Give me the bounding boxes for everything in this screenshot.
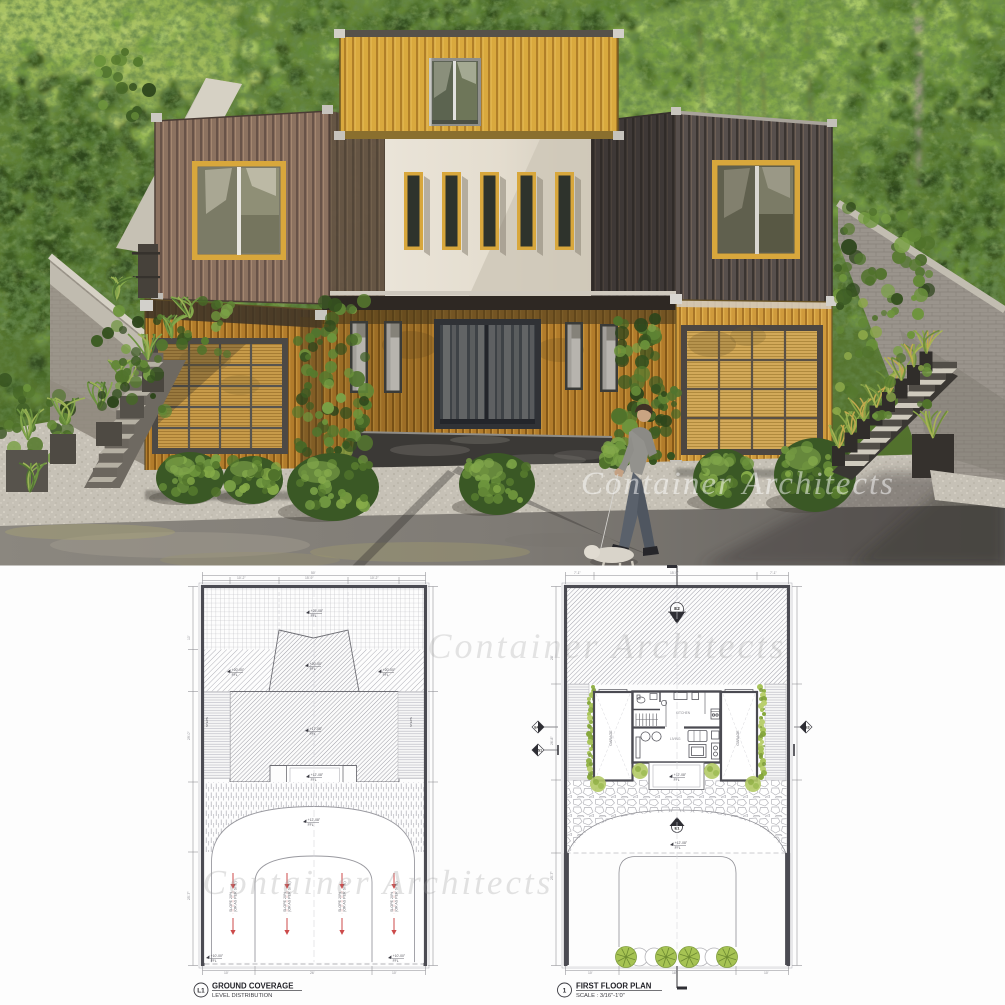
svg-text:18': 18' (672, 971, 677, 975)
svg-text:SCALE : 3/16"-1'0": SCALE : 3/16"-1'0" (576, 993, 625, 999)
svg-text:26'-8": 26'-8" (550, 736, 554, 745)
svg-text:FFL: FFL (674, 778, 680, 782)
svg-text:10'-2": 10'-2" (370, 576, 379, 580)
svg-text:+10'-00": +10'-00" (393, 954, 406, 958)
svg-text:E4: E4 (534, 726, 538, 730)
svg-text:+12'-08": +12'-08" (675, 841, 688, 845)
svg-text:FFL: FFL (211, 959, 217, 963)
svg-text:FFL: FFL (383, 673, 389, 677)
svg-text:E1: E1 (675, 826, 681, 831)
svg-text:S1: S1 (538, 749, 542, 753)
svg-text:FFL: FFL (393, 959, 399, 963)
svg-text:26': 26' (310, 971, 315, 975)
svg-text:+12'-08": +12'-08" (674, 773, 687, 777)
svg-text:+17'-08": +17'-08" (310, 727, 323, 731)
svg-text:E3: E3 (805, 726, 809, 730)
svg-text:+20'-00": +20'-00" (232, 668, 245, 672)
svg-text:25'-7": 25'-7" (550, 871, 554, 880)
svg-text:FFL: FFL (308, 823, 314, 827)
svg-text:LIVING: LIVING (670, 737, 681, 741)
svg-text:FFL: FFL (232, 673, 238, 677)
svg-text:FFL: FFL (675, 846, 681, 850)
svg-text:10'-2": 10'-2" (237, 576, 246, 580)
svg-text:15'-9": 15'-9" (305, 576, 314, 580)
svg-text:50': 50' (311, 571, 316, 575)
svg-text:10': 10' (187, 635, 191, 640)
svg-text:29'-0": 29'-0" (187, 731, 191, 740)
svg-text:+20'-00": +20'-00" (310, 662, 323, 666)
svg-text:+10'-00": +10'-00" (211, 954, 224, 958)
svg-text:+12'-08": +12'-08" (311, 773, 324, 777)
svg-text:L1: L1 (197, 988, 205, 995)
svg-text:Container Architects: Container Architects (203, 863, 554, 902)
svg-text:10': 10' (764, 971, 769, 975)
svg-text:+25'-08": +25'-08" (311, 609, 324, 613)
svg-text:Container Architects: Container Architects (428, 626, 787, 666)
svg-text:LEVEL DISTRIBUTION: LEVEL DISTRIBUTION (212, 993, 272, 999)
svg-text:10': 10' (392, 971, 397, 975)
svg-text:STEPS: STEPS (205, 717, 209, 727)
svg-text:15'-9": 15'-9" (670, 571, 679, 575)
svg-text:+20'-00": +20'-00" (383, 668, 396, 672)
svg-text:28': 28' (550, 655, 554, 660)
svg-text:25'-7": 25'-7" (187, 891, 191, 900)
svg-text:7'-1": 7'-1" (574, 571, 582, 575)
svg-text:KITCHEN: KITCHEN (676, 711, 691, 715)
svg-text:FFL: FFL (310, 667, 316, 671)
svg-text:GROUND COVERAGE: GROUND COVERAGE (212, 982, 293, 991)
svg-text:GARAGE: GARAGE (609, 730, 613, 746)
svg-text:Container Architects: Container Architects (581, 466, 895, 502)
svg-text:10': 10' (224, 971, 229, 975)
svg-text:10': 10' (588, 971, 593, 975)
svg-text:FFL: FFL (311, 614, 317, 618)
svg-text:FIRST FLOOR PLAN: FIRST FLOOR PLAN (576, 982, 652, 991)
svg-text:GARAGE: GARAGE (736, 730, 740, 746)
svg-text:FFL: FFL (310, 732, 316, 736)
svg-text:+12'-08": +12'-08" (308, 818, 321, 822)
svg-text:1: 1 (563, 988, 567, 995)
svg-text:FFL: FFL (311, 778, 317, 782)
svg-text:STEPS: STEPS (409, 717, 413, 727)
svg-text:7'-1": 7'-1" (770, 571, 778, 575)
